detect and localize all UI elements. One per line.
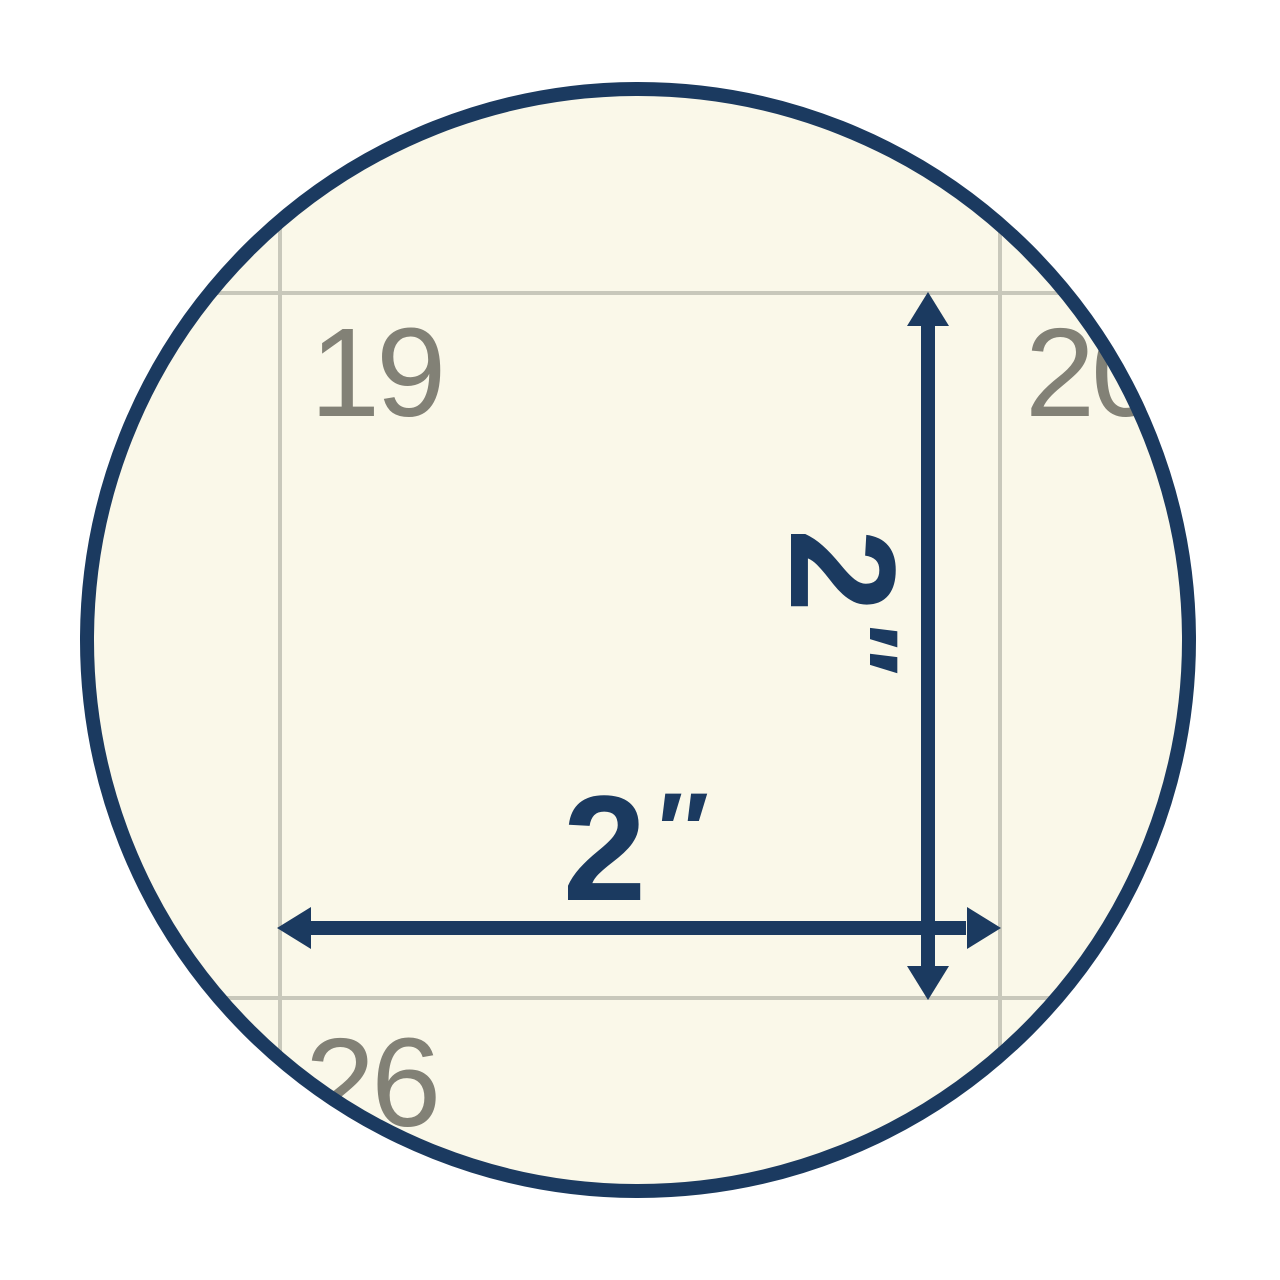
arrowhead-right-icon: [967, 907, 1001, 949]
arrowhead-down-icon: [907, 966, 949, 1000]
calendar-grid-line-vertical-left: [278, 82, 282, 1198]
arrowhead-left-icon: [277, 907, 311, 949]
calendar-date-26: 26: [305, 1020, 437, 1146]
width-dimension-label: 2″: [563, 773, 701, 923]
product-detail-image: 19 20 26 2″ 2″: [0, 0, 1280, 1280]
calendar-date-19: 19: [310, 310, 442, 436]
width-dimension-unit: ″: [652, 770, 702, 891]
calendar-grid-line-horizontal-bottom: [80, 996, 1196, 1000]
vertical-arrow-shaft: [921, 320, 935, 970]
height-dimension-label: 2″: [768, 529, 918, 667]
magnifier-circle: 19 20 26 2″ 2″: [80, 82, 1196, 1198]
width-dimension-value: 2: [563, 764, 646, 932]
calendar-date-20: 20: [1025, 310, 1157, 436]
height-dimension-unit: ″: [800, 618, 921, 668]
calendar-grid-line-vertical-right: [998, 82, 1002, 1198]
arrowhead-up-icon: [907, 292, 949, 326]
calendar-grid-line-horizontal-top: [80, 291, 1196, 295]
height-dimension-value: 2: [759, 529, 927, 612]
